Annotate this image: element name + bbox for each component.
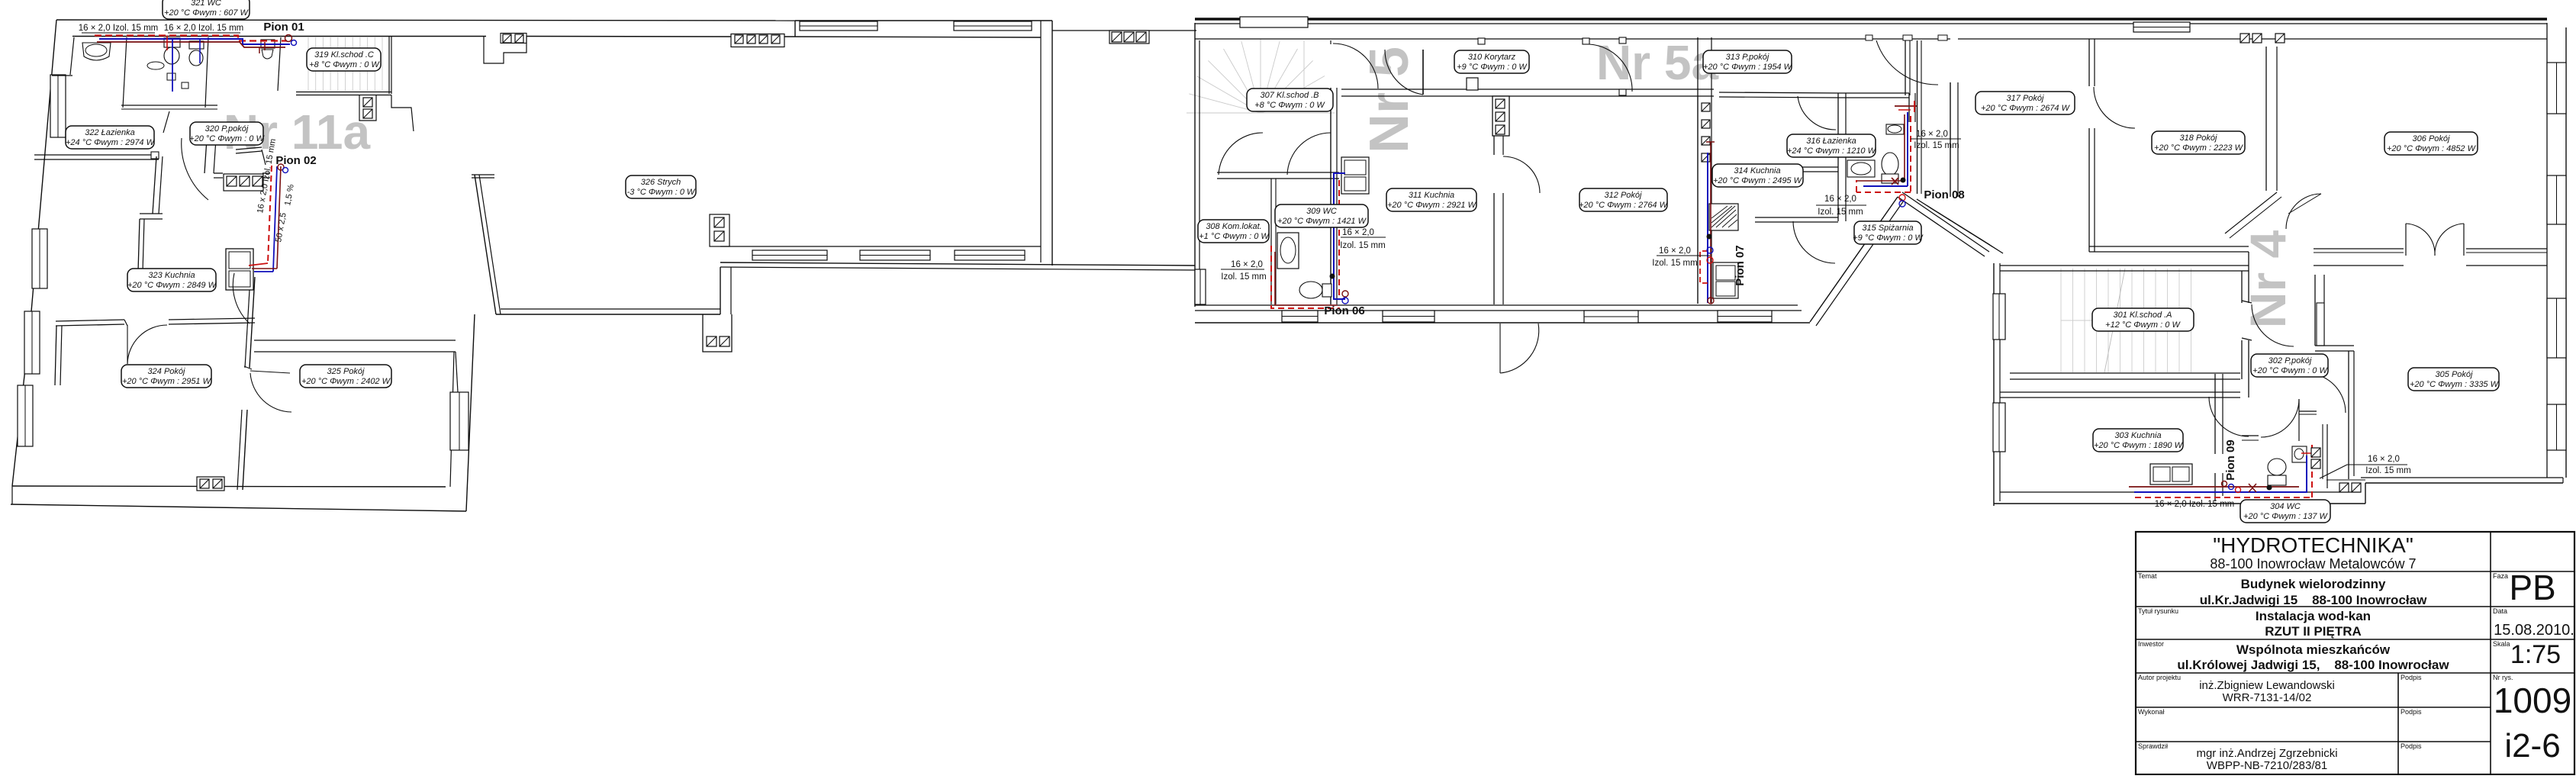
svg-text:+20 °C Φwym : 2951 W: +20 °C Φwym : 2951 W bbox=[122, 377, 212, 386]
svg-text:Inwestor: Inwestor bbox=[2138, 640, 2164, 648]
svg-text:16 × 2,0: 16 × 2,0 bbox=[1231, 260, 1263, 269]
svg-text:+20 °C Φwym : 4852 W: +20 °C Φwym : 4852 W bbox=[2387, 144, 2477, 153]
svg-text:Wykonał: Wykonał bbox=[2138, 708, 2164, 716]
svg-text:318 Pokój: 318 Pokój bbox=[2180, 134, 2217, 143]
svg-text:302 P,pokój: 302 P,pokój bbox=[2268, 356, 2312, 365]
svg-text:Tytuł rysunku: Tytuł rysunku bbox=[2138, 607, 2178, 615]
svg-text:Sprawdził: Sprawdził bbox=[2138, 742, 2168, 750]
svg-text:PB: PB bbox=[2509, 568, 2555, 607]
svg-text:Pion 08: Pion 08 bbox=[1924, 188, 1964, 201]
svg-text:WBPP-NB-7210/283/81: WBPP-NB-7210/283/81 bbox=[2207, 759, 2327, 772]
svg-text:309 WC: 309 WC bbox=[1306, 207, 1337, 216]
svg-text:Nr 5a: Nr 5a bbox=[1596, 35, 1719, 90]
svg-text:Podpis: Podpis bbox=[2401, 742, 2422, 750]
svg-text:Izol. 15 mm: Izol. 15 mm bbox=[1340, 241, 1385, 250]
svg-text:+20 °C Φwym : 2674 W: +20 °C Φwym : 2674 W bbox=[1981, 104, 2071, 113]
svg-text:Nr 5: Nr 5 bbox=[1359, 47, 1420, 153]
svg-text:+8 °C Φwym : 0 W: +8 °C Φwym : 0 W bbox=[309, 60, 380, 69]
svg-text:+20 °C Φwym : 0 W: +20 °C Φwym : 0 W bbox=[189, 134, 265, 143]
svg-text:306 Pokój: 306 Pokój bbox=[2413, 134, 2450, 143]
svg-text:317 Pokój: 317 Pokój bbox=[2007, 94, 2044, 103]
svg-text:314 Kuchnia: 314 Kuchnia bbox=[1734, 166, 1780, 175]
svg-text:16 × 2,0 Izol. 15 mm: 16 × 2,0 Izol. 15 mm bbox=[164, 24, 244, 33]
svg-text:Pion 09: Pion 09 bbox=[2224, 439, 2237, 480]
svg-text:325 Pokój: 325 Pokój bbox=[327, 367, 365, 376]
svg-text:mgr inż.Andrzej Zgrzebnicki: mgr inż.Andrzej Zgrzebnicki bbox=[2196, 747, 2337, 760]
svg-text:16 × 2,0: 16 × 2,0 bbox=[1824, 195, 1856, 204]
svg-text:+20 °C Φwym : 607 W: +20 °C Φwym : 607 W bbox=[164, 8, 250, 18]
svg-text:Faza: Faza bbox=[2493, 572, 2508, 580]
svg-text:305 Pokój: 305 Pokój bbox=[2436, 370, 2473, 379]
svg-text:Pion 07: Pion 07 bbox=[1734, 245, 1747, 285]
svg-text:+20 °C Φwym : 2764 W: +20 °C Φwym : 2764 W bbox=[1579, 201, 1669, 210]
svg-text:308 Kom.lokat.: 308 Kom.lokat. bbox=[1206, 222, 1261, 231]
svg-text:16 × 2,0 Izol. 15 mm: 16 × 2,0 Izol. 15 mm bbox=[2155, 500, 2235, 509]
svg-text:Budynek wielorodzinny: Budynek wielorodzinny bbox=[2241, 577, 2386, 591]
svg-text:"HYDROTECHNIKA": "HYDROTECHNIKA" bbox=[2213, 533, 2413, 557]
svg-text:324 Pokój: 324 Pokój bbox=[148, 367, 185, 376]
svg-text:313 P,pokój: 313 P,pokój bbox=[1726, 53, 1769, 62]
svg-text:Instalacja wod-kan: Instalacja wod-kan bbox=[2256, 609, 2371, 623]
svg-text:316 Łazienka: 316 Łazienka bbox=[1806, 137, 1856, 146]
svg-text:321 WC: 321 WC bbox=[191, 0, 221, 8]
svg-text:Podpis: Podpis bbox=[2401, 674, 2422, 681]
svg-text:16 × 2,0: 16 × 2,0 bbox=[1659, 246, 1691, 256]
svg-text:i2-6: i2-6 bbox=[2504, 727, 2560, 765]
svg-text:Nr 4: Nr 4 bbox=[2240, 230, 2296, 329]
svg-text:+1 °C Φwym : 0 W: +1 °C Φwym : 0 W bbox=[1199, 232, 1270, 241]
svg-text:+20 °C Φwym : 2921 W: +20 °C Φwym : 2921 W bbox=[1387, 201, 1477, 210]
svg-text:+20 °C Φwym : 2402 W: +20 °C Φwym : 2402 W bbox=[301, 377, 391, 386]
svg-text:RZUT II PIĘTRA: RZUT II PIĘTRA bbox=[2265, 624, 2362, 639]
svg-text:ul.Królowej Jadwigi 15, 88-: ul.Królowej Jadwigi 15, 88-100 Inowrocła… bbox=[2177, 658, 2449, 672]
svg-text:Data: Data bbox=[2493, 607, 2507, 615]
svg-text:304 WC: 304 WC bbox=[2270, 502, 2301, 511]
svg-text:Izol. 15 mm: Izol. 15 mm bbox=[2365, 466, 2410, 475]
svg-text:Pion 06: Pion 06 bbox=[1324, 304, 1364, 317]
svg-text:326 Strych: 326 Strych bbox=[641, 178, 681, 187]
svg-text:16 × 2,0: 16 × 2,0 bbox=[1916, 130, 1948, 139]
svg-text:16 × 2,0: 16 × 2,0 bbox=[2368, 455, 2400, 464]
svg-text:319 Kl.schod .C: 319 Kl.schod .C bbox=[314, 50, 374, 60]
svg-text:+20 °C Φwym : 3335 W: +20 °C Φwym : 3335 W bbox=[2410, 380, 2500, 389]
svg-text:315 Spiżarnia: 315 Spiżarnia bbox=[1862, 224, 1913, 233]
svg-text:Autor projektu: Autor projektu bbox=[2138, 674, 2181, 681]
svg-text:16 × 2,0: 16 × 2,0 bbox=[1342, 228, 1374, 237]
svg-text:-3 °C Φwym : 0 W: -3 °C Φwym : 0 W bbox=[627, 188, 696, 197]
svg-text:+12 °C Φwym : 0 W: +12 °C Φwym : 0 W bbox=[2105, 320, 2181, 330]
svg-text:Izol. 15 mm: Izol. 15 mm bbox=[1914, 141, 1959, 150]
svg-text:320 P,pokój: 320 P,pokój bbox=[205, 124, 249, 134]
svg-text:+20 °C Φwym : 2495 W: +20 °C Φwym : 2495 W bbox=[1713, 176, 1803, 185]
svg-text:Izol. 15 mm: Izol. 15 mm bbox=[1652, 259, 1697, 268]
svg-text:+20 °C Φwym : 1954 W: +20 °C Φwym : 1954 W bbox=[1703, 63, 1793, 72]
svg-text:ul.Kr.Jadwigi 15 88-100 Ino: ul.Kr.Jadwigi 15 88-100 Inowrocław bbox=[2200, 593, 2427, 607]
svg-text:+20 °C Φwym : 137 W: +20 °C Φwym : 137 W bbox=[2243, 512, 2329, 521]
svg-text:303 Kuchnia: 303 Kuchnia bbox=[2114, 431, 2161, 440]
svg-text:WRR-7131-14/02: WRR-7131-14/02 bbox=[2223, 691, 2312, 704]
svg-text:301 Kl.schod .A: 301 Kl.schod .A bbox=[2113, 311, 2172, 320]
svg-text:inż.Zbigniew Lewandowski: inż.Zbigniew Lewandowski bbox=[2199, 679, 2335, 692]
svg-text:Podpis: Podpis bbox=[2401, 708, 2422, 716]
svg-text:+20 °C Φwym : 1421 W: +20 °C Φwym : 1421 W bbox=[1277, 217, 1367, 226]
svg-text:307 Kl.schod .B: 307 Kl.schod .B bbox=[1260, 91, 1319, 100]
svg-text:88-100 Inowrocław Metalowców 7: 88-100 Inowrocław Metalowców 7 bbox=[2210, 556, 2416, 571]
svg-text:+20 °C Φwym : 1890 W: +20 °C Φwym : 1890 W bbox=[2094, 441, 2184, 450]
svg-text:+20 °C Φwym : 0 W: +20 °C Φwym : 0 W bbox=[2252, 366, 2328, 375]
svg-text:Izol. 15 mm: Izol. 15 mm bbox=[1818, 208, 1863, 217]
svg-text:16 × 2,0 Izol. 15 mm: 16 × 2,0 Izol. 15 mm bbox=[79, 24, 159, 33]
svg-text:Pion 02: Pion 02 bbox=[275, 154, 316, 167]
svg-text:310 Korytarz: 310 Korytarz bbox=[1468, 53, 1516, 62]
svg-text:Pion 01: Pion 01 bbox=[263, 21, 304, 34]
svg-text:+24 °C Φwym : 2974 W: +24 °C Φwym : 2974 W bbox=[66, 138, 156, 147]
svg-text:Skala: Skala bbox=[2493, 640, 2510, 648]
svg-text:1009: 1009 bbox=[2494, 681, 2571, 720]
svg-text:Temat: Temat bbox=[2138, 572, 2157, 580]
svg-text:15.08.2010.: 15.08.2010. bbox=[2494, 622, 2574, 639]
svg-text:322 Łazienka: 322 Łazienka bbox=[85, 128, 134, 137]
svg-text:+9 °C Φwym : 0 W: +9 °C Φwym : 0 W bbox=[1853, 233, 1924, 243]
svg-text:+9 °C Φwym : 0 W: +9 °C Φwym : 0 W bbox=[1457, 63, 1528, 72]
svg-text:323 Kuchnia: 323 Kuchnia bbox=[148, 271, 195, 280]
svg-text:311 Kuchnia: 311 Kuchnia bbox=[1409, 191, 1454, 200]
svg-text:+24 °C Φwym : 1210 W: +24 °C Φwym : 1210 W bbox=[1787, 146, 1877, 156]
svg-text:1:75: 1:75 bbox=[2510, 640, 2561, 669]
svg-text:+20 °C Φwym : 2223 W: +20 °C Φwym : 2223 W bbox=[2154, 143, 2244, 153]
svg-text:Wspólnota mieszkańców: Wspólnota mieszkańców bbox=[2236, 642, 2391, 657]
svg-text:312 Pokój: 312 Pokój bbox=[1605, 191, 1642, 200]
svg-text:+8 °C Φwym : 0 W: +8 °C Φwym : 0 W bbox=[1254, 101, 1325, 110]
svg-text:+20 °C Φwym : 2849 W: +20 °C Φwym : 2849 W bbox=[127, 281, 217, 290]
svg-text:Izol. 15 mm: Izol. 15 mm bbox=[1221, 272, 1266, 282]
